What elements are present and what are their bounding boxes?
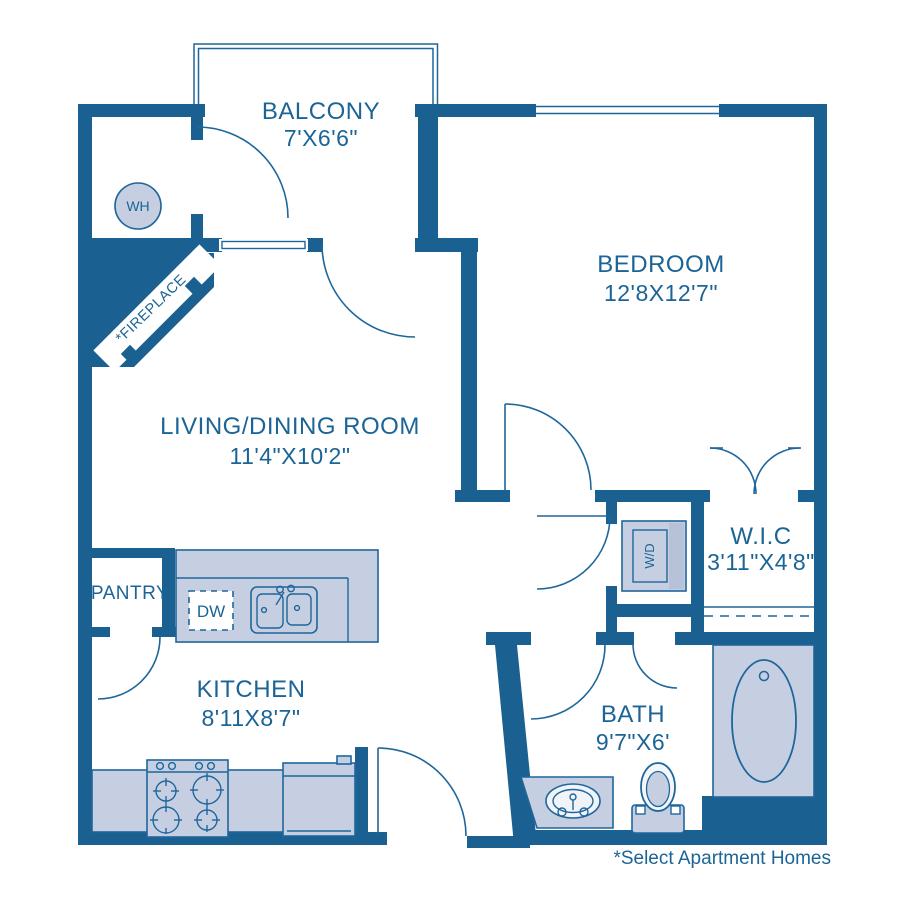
balcony-door-arc: [322, 244, 415, 337]
entry-jamb: [355, 747, 368, 837]
wall-right: [814, 104, 827, 845]
refrigerator-bump: [337, 756, 351, 764]
toilet-bowl-inner: [647, 772, 670, 807]
wd-closet-door-arc: [537, 516, 610, 589]
sliding-glass-door: [222, 242, 305, 249]
bedroom-window-gap: [536, 103, 719, 118]
wic-door-right-arc: [754, 448, 800, 494]
bath-door-secondary-arc: [633, 644, 677, 688]
label-living-dims: 11'4"X10'2": [230, 443, 351, 469]
bath-slanted-wall: [495, 645, 537, 845]
toilet-hinge-left: [636, 806, 645, 814]
wall-bedroom-bottom-right: [798, 490, 818, 502]
fireplace: *FIREPLACE: [92, 240, 221, 372]
refrigerator: [283, 756, 355, 836]
pantry-stub-left: [85, 627, 110, 637]
refrigerator-body: [283, 763, 355, 836]
closet-shelf: [704, 607, 814, 616]
bathtub-drain: [760, 672, 769, 681]
bath-mid-stub: [596, 632, 634, 645]
wd-stub-top: [606, 498, 617, 524]
wh-stub-top: [191, 104, 203, 140]
wall-bedroom-bottom-left: [455, 490, 510, 502]
balcony-railing-outer: [194, 44, 438, 104]
wd-wic-wall: [691, 494, 704, 645]
label-kitchen-name: KITCHEN: [197, 676, 306, 703]
label-kitchen-dims: 8'11X8'7": [201, 705, 300, 731]
pantry-stub-right: [152, 627, 178, 637]
wh-closet-door-arc: [197, 127, 288, 218]
slider-jamb: [307, 238, 323, 252]
washer-dryer-shade: [669, 523, 684, 589]
floorplan-drawing: *FIREPLACE DW: [0, 0, 900, 900]
bath-door-arc: [531, 645, 605, 719]
pantry-door-arc: [98, 637, 160, 699]
bathtub: [713, 645, 814, 797]
water-heater: WH: [115, 183, 161, 229]
washer-dryer: W/D: [622, 521, 686, 591]
label-balcony-name: BALCONY: [262, 98, 380, 125]
wall-divider: [461, 238, 477, 502]
entry-door-arc: [378, 748, 466, 836]
wic-door-left-arc: [710, 448, 756, 494]
wall-left: [78, 104, 92, 845]
wall-top-wh: [78, 104, 205, 117]
water-heater-label: WH: [126, 198, 149, 214]
floorplan-canvas: *FIREPLACE DW: [0, 0, 900, 900]
label-wic-name: W.I.C: [730, 523, 791, 550]
stove: [147, 760, 228, 837]
pantry-top-wall: [78, 548, 175, 558]
toilet-hinge-right: [671, 806, 680, 814]
tub-surround-fill: [702, 796, 827, 842]
label-bath-dims: 9'7"X6': [596, 729, 670, 755]
kitchen-sink: [251, 585, 317, 633]
label-bedroom-dims: 12'8X12'7": [604, 280, 718, 306]
bath-left-stub: [486, 632, 531, 645]
bathtub-deck: [713, 645, 814, 797]
toilet: [632, 763, 684, 833]
balcony-railing-inner: [199, 49, 434, 105]
wic-bottom-wall: [675, 632, 818, 645]
balcony-railing: [194, 44, 438, 104]
wall-bedroom-upper-left: [418, 104, 438, 252]
bedroom-door-arc: [505, 404, 591, 490]
label-balcony-dims: 7'X6'6": [284, 125, 358, 151]
wh-stub-bottom: [191, 214, 203, 240]
label-pantry: PANTRY: [91, 583, 169, 604]
dishwasher-label: DW: [197, 602, 225, 621]
label-bath-name: BATH: [601, 701, 665, 728]
wd-bottom-wall: [606, 604, 698, 617]
label-bedroom-name: BEDROOM: [597, 251, 725, 278]
label-wic-dims: 3'11"X4'8": [707, 549, 815, 575]
washer-dryer-label: W/D: [642, 543, 657, 568]
footnote-text: *Select Apartment Homes: [613, 848, 831, 869]
label-living-name: LIVING/DINING ROOM: [160, 413, 420, 440]
